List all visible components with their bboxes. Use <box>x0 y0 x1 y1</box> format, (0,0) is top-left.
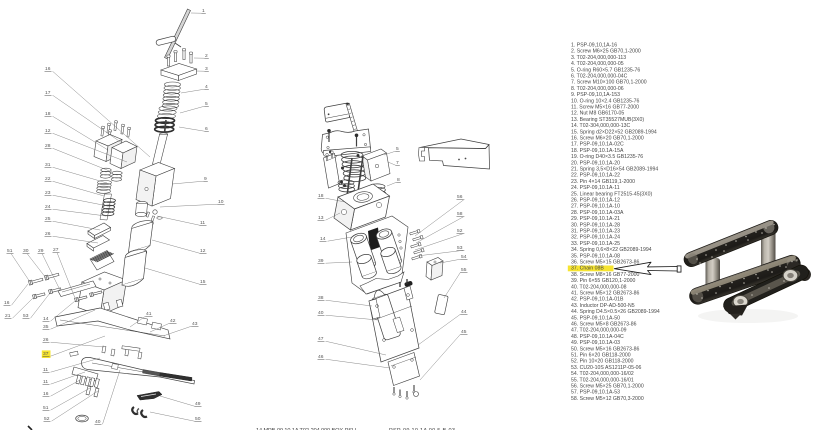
svg-text:27: 27 <box>53 247 59 253</box>
svg-text:56: 56 <box>457 194 463 200</box>
svg-text:44. Spring D4.5×0.5×26 GB2089-: 44. Spring D4.5×0.5×26 GB2089-1994 <box>571 309 660 315</box>
svg-text:55: 55 <box>461 267 467 273</box>
svg-text:11. Screw M5×16 GB77-2000: 11. Screw M5×16 GB77-2000 <box>571 105 639 111</box>
svg-text:49: 49 <box>195 401 201 407</box>
svg-text:9: 9 <box>204 176 207 182</box>
svg-text:16. Screw M6×20 GB70,1-2000: 16. Screw M6×20 GB70,1-2000 <box>571 136 644 142</box>
svg-text:43: 43 <box>192 321 198 327</box>
svg-text:19. O-ring D40×3.5 GB1235-76: 19. O-ring D40×3.5 GB1235-76 <box>571 154 643 160</box>
svg-text:52: 52 <box>457 228 463 234</box>
svg-text:51: 51 <box>43 405 49 411</box>
svg-text:26: 26 <box>45 231 51 237</box>
svg-text:11: 11 <box>43 367 48 373</box>
svg-text:58: 58 <box>457 211 463 217</box>
svg-text:42. PSP-09,10.1A-01B: 42. PSP-09,10.1A-01B <box>571 297 624 303</box>
svg-text:52: 52 <box>44 416 50 422</box>
svg-text:21: 21 <box>5 313 11 319</box>
svg-text:44: 44 <box>461 309 467 315</box>
svg-text:24: 24 <box>45 204 51 210</box>
svg-text:46: 46 <box>318 354 324 360</box>
svg-text:30. PSP-09,10.1A-28: 30. PSP-09,10.1A-28 <box>571 222 620 228</box>
svg-text:47: 47 <box>318 336 324 342</box>
svg-text:15: 15 <box>200 279 206 285</box>
svg-text:40: 40 <box>318 310 324 316</box>
svg-text:14: 14 <box>43 316 49 322</box>
svg-text:29. PSP-09,10.1A-21: 29. PSP-09,10.1A-21 <box>571 216 620 222</box>
svg-text:41. Screw M5×12 GB2673-86: 41. Screw M5×12 GB2673-86 <box>571 291 639 297</box>
svg-text:23: 23 <box>45 190 51 196</box>
svg-text:5: 5 <box>205 101 208 107</box>
svg-text:26: 26 <box>43 337 49 343</box>
svg-text:6: 6 <box>205 126 208 132</box>
svg-text:4. T02-204,000,000-05: 4. T02-204,000,000-05 <box>571 61 624 67</box>
svg-text:18. PSP-09,10.1A-15A: 18. PSP-09,10.1A-15A <box>571 148 624 154</box>
svg-text:20. PSP-09,10.1A-20: 20. PSP-09,10.1A-20 <box>571 160 620 166</box>
svg-text:25. Linear bearing FT2515-45(3: 25. Linear bearing FT2515-45(3X0) <box>571 191 653 197</box>
svg-text:18: 18 <box>318 193 324 199</box>
svg-text:40. T02-204,000,000-08: 40. T02-204,000,000-08 <box>571 284 627 290</box>
svg-text:32. PSP-09,10.1A-24: 32. PSP-09,10.1A-24 <box>571 235 620 241</box>
svg-text:53. CU20-10S AS1211P-05-06: 53. CU20-10S AS1211P-05-06 <box>571 365 642 371</box>
svg-text:53: 53 <box>457 245 463 251</box>
svg-text:53: 53 <box>23 313 29 319</box>
svg-text:50: 50 <box>195 416 201 422</box>
svg-text:54. T02-204,000,000-16/02: 54. T02-204,000,000-16/02 <box>571 371 634 377</box>
svg-text:12: 12 <box>200 248 206 254</box>
svg-text:16: 16 <box>4 300 10 306</box>
svg-text:16: 16 <box>43 391 49 397</box>
svg-text:40: 40 <box>95 419 101 425</box>
svg-text:52. Pin 10×20 GB118-2000: 52. Pin 10×20 GB118-2000 <box>571 359 634 365</box>
svg-text:54: 54 <box>461 254 467 260</box>
svg-text:17. PSP-09,10.1A-02C: 17. PSP-09,10.1A-02C <box>571 142 624 148</box>
svg-text:5: 5 <box>396 146 399 152</box>
svg-text:35: 35 <box>43 324 49 330</box>
svg-text:12: 12 <box>45 128 51 134</box>
svg-text:25: 25 <box>45 216 51 222</box>
svg-text:39. Pin 6×55 GB120,1-2000: 39. Pin 6×55 GB120,1-2000 <box>571 278 635 284</box>
svg-text:46. Screw M5×8 GB2673-86: 46. Screw M5×8 GB2673-86 <box>571 322 637 328</box>
svg-text:3: 3 <box>205 66 208 72</box>
svg-text:15. Spring d2×D22×52 GB2089-19: 15. Spring d2×D22×52 GB2089-1994 <box>571 129 657 135</box>
svg-text:22. PSP-09,10.1A-22: 22. PSP-09,10.1A-22 <box>571 173 620 179</box>
svg-text:2. Screw M6×25 GB70,1-2000: 2. Screw M6×25 GB70,1-2000 <box>571 49 641 55</box>
svg-text:14: 14 <box>320 236 326 242</box>
svg-text:28: 28 <box>45 143 51 149</box>
svg-text:5. O-ring R60×5.7 GB1235-76: 5. O-ring R60×5.7 GB1235-76 <box>571 67 640 73</box>
svg-text:13: 13 <box>318 215 324 221</box>
svg-text:2: 2 <box>205 53 208 59</box>
svg-text:38: 38 <box>318 295 324 301</box>
svg-text:7: 7 <box>396 160 399 166</box>
svg-text:35. PSP-09,10.1A-08: 35. PSP-09,10.1A-08 <box>571 253 620 259</box>
svg-text:3. T02-204,000,000-113: 3. T02-204,000,000-113 <box>571 55 626 61</box>
svg-text:45: 45 <box>461 329 467 335</box>
svg-text:1: 1 <box>202 8 205 14</box>
svg-text:9. PSP-09,10,1A-153: 9. PSP-09,10,1A-153 <box>571 92 620 98</box>
svg-text:4: 4 <box>205 84 208 90</box>
svg-text:1. PSP-09,10,1A-16: 1. PSP-09,10,1A-16 <box>571 43 617 49</box>
svg-text:23. Pin 4×14 GB119,1-2000: 23. Pin 4×14 GB119,1-2000 <box>571 179 635 185</box>
svg-text:6. T02-204,000,000-04C: 6. T02-204,000,000-04C <box>571 74 628 80</box>
svg-text:13. Bearing ST35527MUB(3X0): 13. Bearing ST35527MUB(3X0) <box>571 117 644 123</box>
svg-text:43. Inductor DP-AD-500-N5: 43. Inductor DP-AD-500-N5 <box>571 303 635 309</box>
svg-text:50. Screw M5×16 GB2673-86: 50. Screw M5×16 GB2673-86 <box>571 346 639 352</box>
svg-text:16: 16 <box>45 66 51 72</box>
svg-text:18: 18 <box>45 111 51 117</box>
svg-text:29: 29 <box>38 248 44 254</box>
svg-text:55. T02-204,000,000-16/01: 55. T02-204,000,000-16/01 <box>571 377 634 383</box>
svg-text:14. T02-304,000,000-13C: 14. T02-304,000,000-13C <box>571 123 631 129</box>
svg-text:33. PSP-09,10.1A-25: 33. PSP-09,10.1A-25 <box>571 241 620 247</box>
svg-text:37: 37 <box>43 351 49 357</box>
svg-text:58. Screw M5×12 GB70,3-2000: 58. Screw M5×12 GB70,3-2000 <box>571 396 644 402</box>
svg-text:8: 8 <box>397 177 400 183</box>
svg-text:39: 39 <box>318 258 324 264</box>
svg-text:17: 17 <box>45 90 51 96</box>
svg-text:22: 22 <box>45 176 51 182</box>
svg-text:11: 11 <box>43 379 48 385</box>
svg-text:27. PSP-09,10.1A-10: 27. PSP-09,10.1A-10 <box>571 204 620 210</box>
svg-text:56. Screw M5×25 GB70,1-2000: 56. Screw M5×25 GB70,1-2000 <box>571 384 644 390</box>
svg-text:49. PSP-09,10.1A-03: 49. PSP-09,10.1A-03 <box>571 340 620 346</box>
svg-text:38. Screw M8×16 GB77-2000: 38. Screw M8×16 GB77-2000 <box>571 272 639 278</box>
svg-text:7. Screw M10×100 GB70,1-2000: 7. Screw M10×100 GB70,1-2000 <box>571 80 647 86</box>
svg-text:31. PSP-09,10.1A-23: 31. PSP-09,10.1A-23 <box>571 229 620 235</box>
svg-text:48. PSP-09,10.1A-04C: 48. PSP-09,10.1A-04C <box>571 334 624 340</box>
svg-text:42: 42 <box>170 318 176 324</box>
svg-text:8. T02-204,000,000-06: 8. T02-204,000,000-06 <box>571 86 624 92</box>
svg-text:10: 10 <box>218 199 224 205</box>
svg-text:34. Spring 0,6×8×22 GB2089-199: 34. Spring 0,6×8×22 GB2089-1994 <box>571 247 652 253</box>
svg-text:11: 11 <box>200 220 205 226</box>
svg-text:24. PSP-09,10.1A-11: 24. PSP-09,10.1A-11 <box>571 185 620 191</box>
svg-text:36. Screw M5×15 GB2673-86: 36. Screw M5×15 GB2673-86 <box>571 260 639 266</box>
svg-text:37. Chain 08B: 37. Chain 08B <box>571 266 604 272</box>
svg-text:41: 41 <box>146 311 152 317</box>
svg-text:45. PSP-09,10.1A-50: 45. PSP-09,10.1A-50 <box>571 315 620 321</box>
svg-text:30: 30 <box>23 248 29 254</box>
svg-text:31: 31 <box>45 162 51 168</box>
svg-text:10. O-ring 10×2.4 GB1235-76: 10. O-ring 10×2.4 GB1235-76 <box>571 98 640 104</box>
svg-text:28. PSP-09,10.1A-03A: 28. PSP-09,10.1A-03A <box>571 210 624 216</box>
svg-text:12. Nut M8 GB6170-05: 12. Nut M8 GB6170-05 <box>571 111 624 117</box>
svg-text:26. PSP-09,10.1A-12: 26. PSP-09,10.1A-12 <box>571 198 620 204</box>
svg-text:21. Spring 3,5×D16×54 GB2089-1: 21. Spring 3,5×D16×54 GB2089-1994 <box>571 167 658 173</box>
svg-text:51. Pin 6×20 GB118-2000: 51. Pin 6×20 GB118-2000 <box>571 353 631 359</box>
svg-text:57. PSP-09,10.1A-53: 57. PSP-09,10.1A-53 <box>571 390 620 396</box>
svg-text:51: 51 <box>7 248 13 254</box>
svg-text:47. T02-204,000,000-09: 47. T02-204,000,000-09 <box>571 328 627 334</box>
